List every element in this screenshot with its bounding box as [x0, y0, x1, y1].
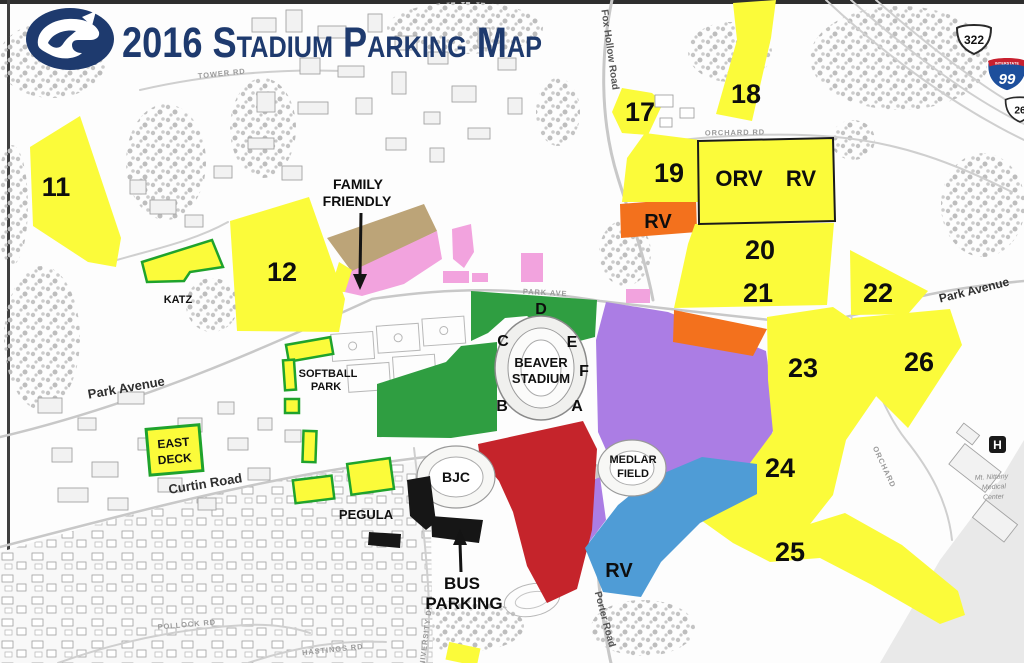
map-canvas: EAST DECK — [0, 0, 1024, 663]
lot-softball-small[interactable] — [285, 399, 299, 413]
lot-pink-small[interactable] — [521, 253, 543, 282]
penn-state-logo: ® — [26, 8, 114, 70]
stadium-parking-map: EAST DECK — [0, 0, 1024, 663]
road-label-orchard: ORCHARD RD — [705, 127, 765, 137]
tree-cluster — [536, 78, 580, 146]
lot-11-label: 11 — [42, 172, 71, 202]
bjc-label: BJC — [442, 469, 470, 485]
lot-21-label: 21 — [743, 278, 773, 308]
scan-border-top — [0, 0, 1024, 4]
beaver-stadium-label-line1: BEAVER — [514, 355, 568, 370]
lot-25-label: 25 — [775, 537, 805, 567]
lot-rv-north-label: RV — [644, 211, 672, 233]
lot-17-label: 17 — [625, 97, 655, 127]
tree-cluster — [186, 278, 238, 332]
lot-pink-small[interactable] — [443, 271, 469, 283]
gate-a-label: A — [571, 398, 583, 415]
i99-label: 99 — [999, 71, 1016, 88]
lot-pegula-small[interactable] — [347, 458, 394, 495]
east-deck-label-line2: DECK — [157, 450, 192, 467]
gate-b-label: B — [496, 398, 508, 415]
family-friendly-arrow — [360, 213, 361, 276]
lot-softball-small[interactable] — [283, 360, 296, 391]
bus-parking-label-line1: BUS — [444, 574, 480, 593]
lot-orv-label: ORV — [715, 166, 763, 191]
bus-parking-arrow — [460, 543, 461, 572]
route-26-label: 26 — [1014, 105, 1024, 116]
pegula-label: PEGULA — [339, 507, 394, 522]
gate-d-label: D — [535, 301, 547, 318]
beaver-stadium-label-line2: STADIUM — [512, 371, 570, 386]
tree-cluster — [4, 266, 80, 410]
lot-rv-south-label: RV — [605, 560, 633, 582]
gate-e-label: E — [567, 334, 578, 351]
gate-c-label: C — [497, 333, 509, 350]
lot-22-label: 22 — [863, 278, 893, 308]
lot-pink-small[interactable] — [626, 289, 650, 303]
family-friendly-label-line2: FRIENDLY — [323, 193, 392, 209]
tree-cluster — [941, 153, 1024, 257]
katz-label: KATZ — [164, 294, 193, 306]
tree-cluster — [831, 120, 875, 160]
bus-parking-label-line2: PARKING — [425, 594, 502, 613]
lot-orv-rv-label: RV — [786, 166, 816, 191]
page-title: 2016 Stadium Parking Map — [122, 19, 542, 67]
medlar-field-label-line1: MEDLAR — [609, 454, 656, 466]
lot-20-label: 20 — [745, 235, 775, 265]
lot-pegula-small[interactable] — [302, 431, 316, 462]
lot-12-label: 12 — [267, 257, 297, 287]
softball-park-label-line2: PARK — [311, 381, 341, 393]
lot-18-label: 18 — [731, 79, 761, 109]
gate-f-label: F — [579, 363, 589, 380]
east-deck-label-line1: EAST — [157, 435, 191, 452]
lot-pink-small[interactable] — [472, 273, 488, 282]
lot-19-label: 19 — [654, 158, 684, 188]
registered-mark: ® — [92, 59, 98, 67]
lot-26-label: 26 — [904, 347, 934, 377]
lot-pegula-small[interactable] — [293, 476, 335, 504]
softball-park-label-line1: SOFTBALL — [299, 368, 358, 380]
medlar-field-label-line2: FIELD — [617, 468, 649, 480]
family-friendly-label-line1: FAMILY — [333, 176, 384, 192]
medical-center-label-line3: Center — [983, 493, 1005, 501]
medical-center-label-line2: Medical — [982, 483, 1007, 491]
hospital-h-label: H — [993, 438, 1002, 452]
lot-23-label: 23 — [788, 353, 818, 383]
us-322-label: 322 — [964, 33, 984, 47]
interstate-banner-label: INTERSTATE — [995, 62, 1020, 66]
lot-24-label: 24 — [765, 453, 795, 483]
lot-east-deck-area[interactable] — [146, 425, 203, 475]
